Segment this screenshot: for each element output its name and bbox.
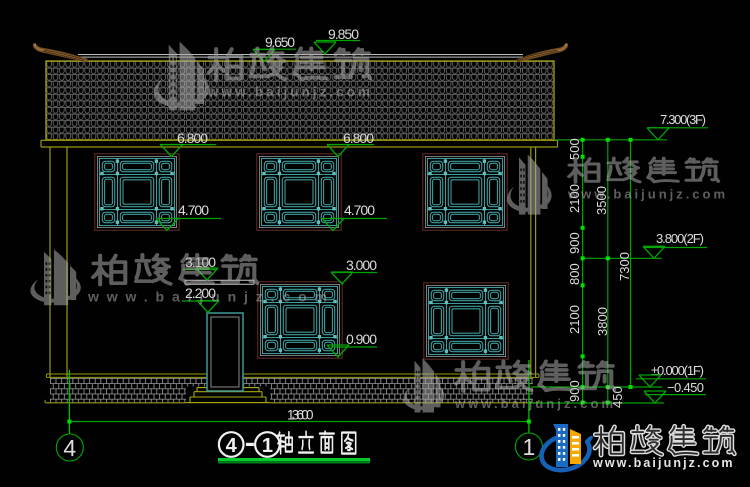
svg-text:4.700: 4.700 (344, 202, 375, 218)
svg-text:1: 1 (262, 435, 273, 457)
svg-text:6.800: 6.800 (177, 130, 208, 146)
svg-text:9.850: 9.850 (328, 26, 359, 42)
svg-text:3.800(2F): 3.800(2F) (656, 231, 704, 246)
svg-text:800: 800 (567, 263, 582, 285)
svg-text:www.baijunjz.com: www.baijunjz.com (592, 456, 734, 470)
svg-text:www.baijunjz.com: www.baijunjz.com (567, 187, 727, 202)
svg-text:−0.450: −0.450 (667, 380, 704, 395)
svg-text:www.baijunjz.com: www.baijunjz.com (454, 396, 615, 411)
svg-text:9.650: 9.650 (265, 34, 295, 50)
svg-text:3.000: 3.000 (346, 257, 377, 273)
svg-text:4: 4 (226, 435, 238, 457)
svg-text:0.900: 0.900 (346, 331, 377, 347)
svg-text:1: 1 (523, 434, 536, 460)
svg-text:4.700: 4.700 (178, 202, 209, 218)
svg-text:6.800: 6.800 (343, 130, 374, 146)
svg-text:±0.000(1F): ±0.000(1F) (651, 363, 704, 378)
svg-text:2100: 2100 (567, 305, 582, 334)
svg-text:7300: 7300 (617, 252, 632, 281)
svg-text:www.baijunjz.com: www.baijunjz.com (207, 85, 373, 100)
svg-text:3800: 3800 (595, 307, 610, 336)
svg-text:500: 500 (567, 138, 582, 160)
svg-text:4: 4 (63, 435, 76, 461)
svg-text:900: 900 (567, 232, 582, 254)
svg-text:7.300(3F): 7.300(3F) (660, 112, 706, 127)
svg-text:13600: 13600 (287, 408, 314, 423)
